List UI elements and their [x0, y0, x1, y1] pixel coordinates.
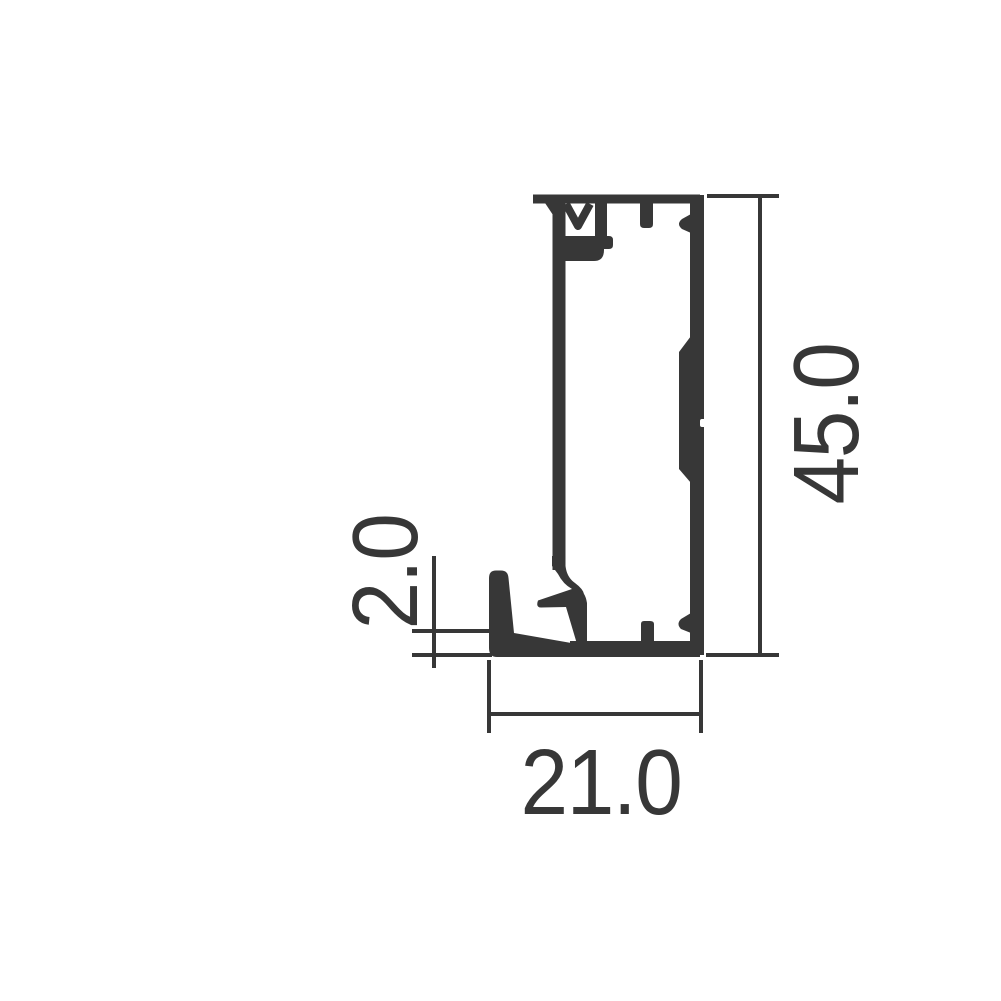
right-wall-thick-section: [679, 336, 691, 483]
dimension-wall-thickness: 2.0: [333, 515, 492, 668]
dimension-label-height: 45.0: [774, 344, 878, 505]
upper-nub: [679, 214, 691, 233]
chamber-floor: [553, 236, 613, 261]
profile-technical-drawing: 45.0 2.0 21.0: [0, 0, 1001, 1001]
drawing-canvas: 45.0 2.0 21.0: [0, 0, 1001, 1001]
flange-fillet: [545, 203, 553, 215]
outer-edge-notch: [700, 419, 706, 427]
dimension-height: 45.0: [706, 194, 878, 657]
dimension-label-thickness: 2.0: [333, 515, 437, 630]
profile-cross-section: [489, 195, 706, 657]
bottom-wall-tab: [641, 621, 654, 650]
screw-groove-v-notch: [566, 204, 590, 226]
dimension-label-width: 21.0: [521, 730, 682, 834]
lower-nub: [679, 613, 692, 633]
dimension-width: 21.0: [487, 660, 703, 834]
hanging-tab: [640, 201, 653, 228]
